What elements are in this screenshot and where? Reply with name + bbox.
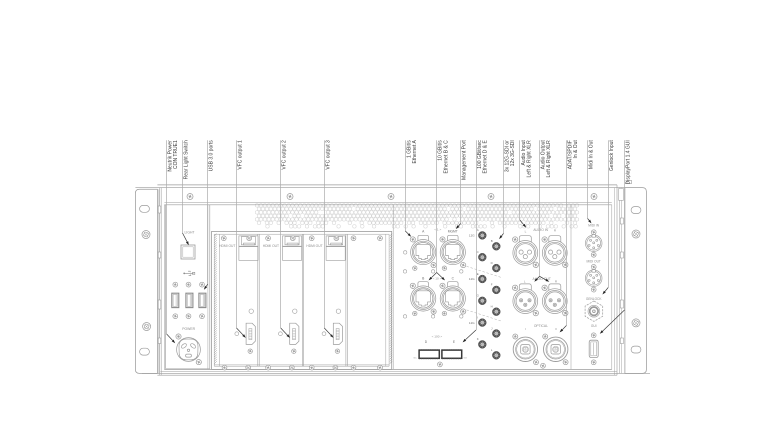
svg-text:OPTICAL: OPTICAL	[534, 324, 548, 328]
svg-text:MIDI IN: MIDI IN	[588, 223, 599, 227]
svg-text:GO: GO	[464, 357, 468, 359]
svg-text:12G: 12G	[469, 321, 475, 325]
svg-text:II: II	[555, 327, 557, 331]
svg-text:USB 3.0 ports: USB 3.0 ports	[209, 140, 215, 172]
svg-text:VFC output 2: VFC output 2	[282, 140, 288, 170]
svg-text:< 10 >: < 10 >	[433, 277, 442, 281]
svg-text:Genlock Input: Genlock Input	[609, 140, 615, 171]
svg-text:< 100 >: < 100 >	[432, 335, 443, 339]
svg-text:< 1 >: < 1 >	[434, 228, 441, 232]
svg-text:DisplayPort 1.4 GUI: DisplayPort 1.4 GUI	[626, 140, 632, 184]
svg-text:K: K	[477, 337, 479, 341]
svg-text:Midi In & Out: Midi In & Out	[589, 140, 595, 170]
svg-text:A: A	[477, 228, 479, 232]
svg-text:D: D	[491, 261, 493, 265]
svg-text:VFC output 3: VFC output 3	[325, 140, 331, 170]
svg-text:Ethernet D & E: Ethernet D & E	[483, 140, 489, 174]
svg-text:I: I	[525, 327, 526, 331]
svg-text:POWER: POWER	[182, 327, 195, 331]
svg-text:GENLOCK: GENLOCK	[586, 297, 602, 301]
svg-text:HDMI OUT: HDMI OUT	[219, 244, 235, 248]
svg-text:B: B	[491, 239, 493, 243]
svg-text:L: L	[525, 230, 527, 234]
svg-text:12G: 12G	[469, 277, 475, 281]
svg-text:HDMI OUT: HDMI OUT	[263, 244, 279, 248]
svg-text:VFC output 1: VFC output 1	[238, 140, 244, 170]
svg-text:Rear Light Switch: Rear Light Switch	[184, 140, 190, 179]
svg-text:MIDI OUT: MIDI OUT	[587, 259, 601, 263]
svg-text:Left & Right XLR: Left & Right XLR	[527, 140, 533, 178]
svg-text:Ethernet B & C: Ethernet B & C	[443, 140, 449, 174]
svg-text:F: F	[491, 283, 493, 287]
svg-text:MGMT: MGMT	[448, 229, 458, 233]
svg-text:12x 3G-SDI: 12x 3G-SDI	[510, 140, 516, 166]
svg-text:CON TRUE1: CON TRUE1	[173, 140, 179, 169]
svg-text:GUI: GUI	[591, 324, 597, 328]
svg-text:LIGHT: LIGHT	[185, 230, 195, 234]
svg-text:GC: GC	[413, 357, 417, 359]
svg-text:Left & Right XLR: Left & Right XLR	[546, 140, 552, 178]
svg-text:Management Port: Management Port	[462, 140, 468, 180]
svg-text:In & Out: In & Out	[573, 140, 579, 159]
svg-text:E: E	[477, 272, 479, 276]
svg-text:Ethernet A: Ethernet A	[412, 140, 418, 164]
svg-text:HDMI OUT: HDMI OUT	[306, 244, 322, 248]
svg-text:C: C	[477, 250, 479, 254]
svg-text:AUDIO IN: AUDIO IN	[533, 228, 548, 232]
svg-text:12G: 12G	[469, 234, 475, 238]
svg-text:H: H	[491, 305, 493, 309]
svg-text:L: L	[524, 279, 526, 283]
